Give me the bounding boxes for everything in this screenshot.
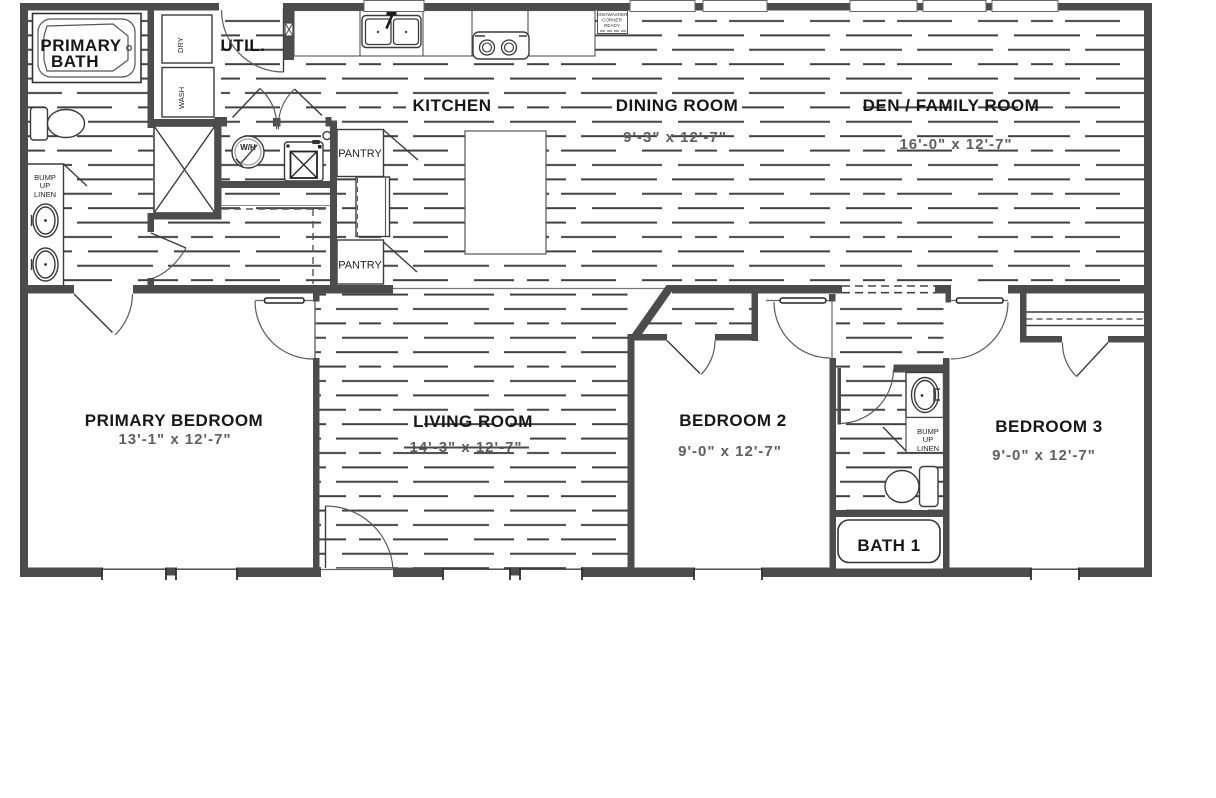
svg-text:LINEN: LINEN xyxy=(917,444,939,453)
svg-text:UTIL.: UTIL. xyxy=(221,36,266,55)
svg-text:DEN / FAMILY ROOM: DEN / FAMILY ROOM xyxy=(863,96,1040,115)
svg-text:16'-0" x 12'-7": 16'-0" x 12'-7" xyxy=(899,136,1012,153)
svg-text:W/H: W/H xyxy=(240,143,256,152)
svg-text:READY: READY xyxy=(604,23,620,28)
svg-text:UP: UP xyxy=(923,435,933,444)
svg-text:PRIMARY BEDROOM: PRIMARY BEDROOM xyxy=(85,411,263,430)
svg-text:WASH: WASH xyxy=(177,87,186,109)
svg-text:DISHWASHER: DISHWASHER xyxy=(597,12,629,17)
svg-text:9'-0" x 12'-7": 9'-0" x 12'-7" xyxy=(678,443,782,460)
svg-text:BATH: BATH xyxy=(51,52,99,71)
svg-text:LINEN: LINEN xyxy=(34,190,56,199)
svg-text:PANTRY: PANTRY xyxy=(338,260,382,272)
svg-text:BATH 1: BATH 1 xyxy=(857,536,920,555)
svg-text:9'-3" x 12'-7": 9'-3" x 12'-7" xyxy=(623,129,727,146)
svg-text:UP: UP xyxy=(40,181,50,190)
svg-text:DRY: DRY xyxy=(176,37,185,53)
svg-text:KITCHEN: KITCHEN xyxy=(412,96,491,115)
svg-text:9'-0" x 12'-7": 9'-0" x 12'-7" xyxy=(992,447,1096,464)
svg-text:13'-1" x 12'-7": 13'-1" x 12'-7" xyxy=(118,431,231,448)
svg-text:PANTRY: PANTRY xyxy=(338,148,382,160)
svg-text:DINING ROOM: DINING ROOM xyxy=(616,96,739,115)
svg-text:CORNER: CORNER xyxy=(602,18,623,23)
svg-text:LIVING ROOM: LIVING ROOM xyxy=(413,412,533,431)
svg-text:BEDROOM 2: BEDROOM 2 xyxy=(679,411,786,430)
svg-text:BEDROOM 3: BEDROOM 3 xyxy=(995,417,1102,436)
